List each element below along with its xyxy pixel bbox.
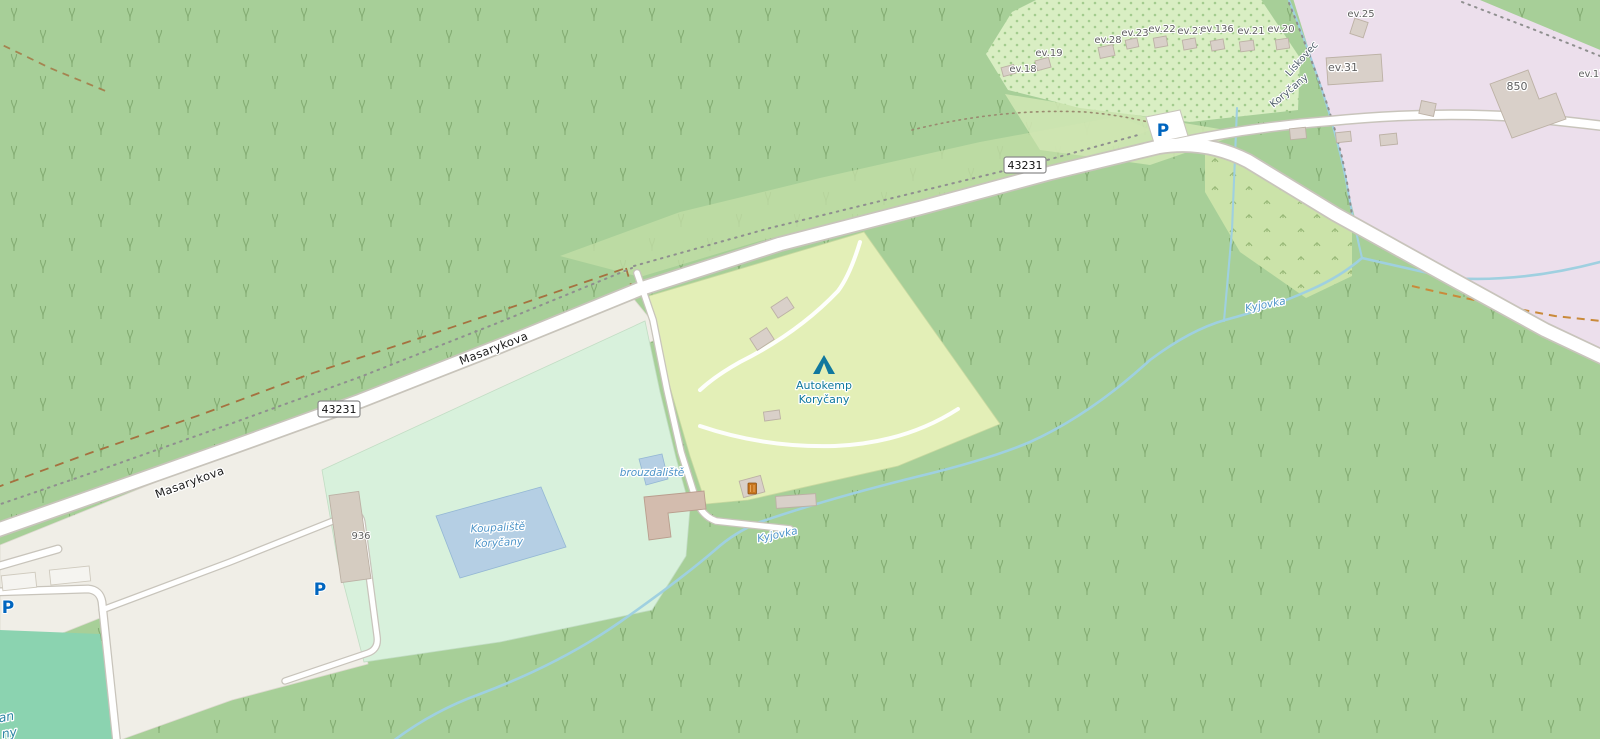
- campsite-label: Autokemp: [796, 379, 852, 392]
- building: [1419, 101, 1436, 117]
- house-label: ev.23: [1121, 28, 1148, 39]
- house-label: ev.25: [1347, 9, 1374, 20]
- house-label: ev.17: [1578, 69, 1600, 80]
- parking-icon: P: [314, 580, 326, 600]
- building: [1239, 40, 1254, 52]
- campsite-label: Koryčany: [799, 393, 850, 406]
- building: [1379, 133, 1397, 146]
- building: [1, 572, 36, 590]
- road-ref-label: 43231: [322, 403, 357, 416]
- building: [1153, 36, 1168, 48]
- house-label: ev.136: [1200, 24, 1234, 35]
- house-label: ev.20: [1267, 24, 1294, 35]
- road-shield: 43231: [1004, 157, 1046, 173]
- house-label: ev.28: [1094, 35, 1121, 46]
- road-ref-label: 43231: [1008, 159, 1043, 172]
- building: [1182, 38, 1197, 50]
- building: [776, 494, 817, 509]
- house-label: ev.22: [1148, 24, 1175, 35]
- house-label: ev.21: [1237, 26, 1264, 37]
- house-label: 936: [351, 531, 370, 542]
- building: [1275, 38, 1289, 50]
- parking-icon: P: [1157, 121, 1169, 141]
- map-canvas[interactable]: 43231 43231 Masarykova Masarykova P P P …: [0, 0, 1600, 739]
- building: [1210, 39, 1225, 51]
- building: [1125, 38, 1139, 49]
- house-label: ev.31: [1328, 61, 1358, 74]
- pitch-area: [0, 630, 118, 739]
- building: [1289, 127, 1306, 140]
- house-label: ev.19: [1035, 48, 1062, 59]
- house-label: ev.18: [1009, 64, 1036, 75]
- pitch-label-fragment: an: [0, 708, 15, 725]
- building: [1336, 131, 1352, 143]
- waste-basket-icon: [748, 483, 757, 494]
- parking-icon: P: [2, 598, 14, 618]
- road-shield: 43231: [318, 401, 360, 417]
- house-label: 850: [1507, 80, 1528, 93]
- paddling-pool-label: brouzdaliště: [620, 467, 685, 479]
- building: [763, 410, 780, 421]
